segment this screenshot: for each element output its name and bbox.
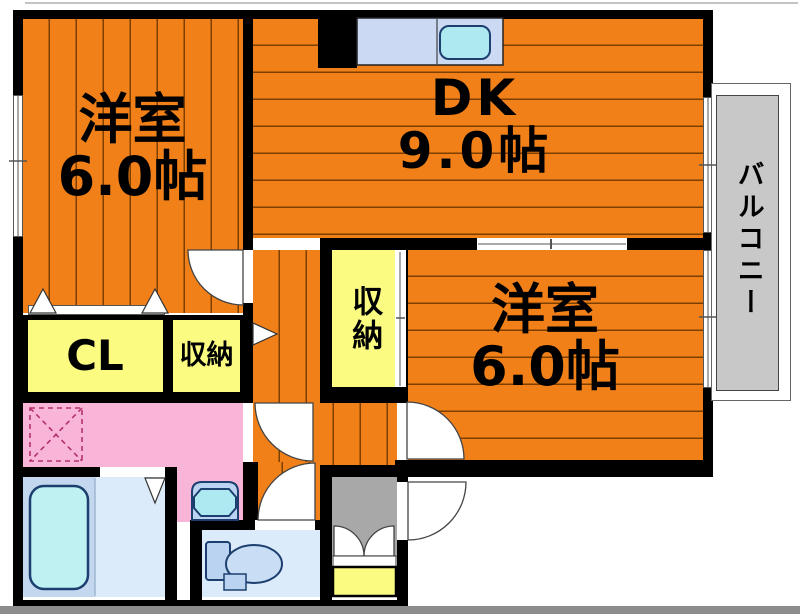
- balcony-label: バルコニー: [717, 120, 778, 360]
- wall-storage-mid-south: [320, 387, 408, 403]
- door-arc-front-door: [408, 482, 466, 540]
- room-name: DK: [365, 72, 585, 125]
- top-border-line: [25, 2, 798, 4]
- wall-left-upper: [13, 19, 23, 95]
- storage-hall-label: 収納: [168, 342, 245, 370]
- storage-mid-label: 収納: [336, 258, 392, 380]
- hallway-floor-mid: [253, 397, 397, 465]
- floor-plan: 洋室 6.0帖 DK 9.0帖 洋室 6.0帖 CL 収納 収納 バルコニー: [0, 0, 800, 614]
- wall-divider-upper: [243, 10, 253, 250]
- closet-door-track: [28, 305, 165, 315]
- opening-room2-door: [397, 403, 408, 460]
- closet-label: CL: [25, 334, 165, 378]
- opening-washroom-door: [243, 403, 253, 462]
- room-size: 9.0帖: [365, 125, 585, 178]
- toilet-room-floor: [202, 530, 320, 597]
- wall-room2-south: [395, 460, 713, 477]
- wall-bathroom-top: [23, 467, 100, 477]
- opening-front-door: [397, 482, 408, 540]
- western-room-1-label: 洋室 6.0帖: [25, 92, 240, 205]
- room-name: 洋室: [425, 282, 665, 339]
- western-room-2-label: 洋室 6.0帖: [425, 282, 665, 395]
- room-name: 洋室: [25, 92, 240, 149]
- wall-left-lower: [13, 237, 23, 610]
- opening-dk-hallway: [253, 238, 320, 250]
- hallway-floor-upper: [253, 248, 320, 397]
- opening-bathroom-door: [100, 469, 165, 477]
- wall-top: [13, 10, 713, 19]
- washroom-floor: [23, 403, 243, 467]
- bottom-border-bar: [0, 606, 800, 614]
- bathtub-surround: [23, 477, 95, 597]
- wall-washroom-north: [23, 394, 245, 403]
- wall-dk-south-a: [320, 238, 477, 250]
- wall-genkan-west: [320, 465, 332, 600]
- storage-mid-door-track: [395, 250, 406, 387]
- room-size: 6.0帖: [425, 339, 665, 396]
- opening-room1-door: [243, 250, 253, 303]
- shoe-cabinet-top: [333, 556, 396, 567]
- kitchen-pillar: [318, 10, 357, 68]
- sliding-door-dk-room2: [477, 238, 627, 250]
- washroom-floor-lower: [177, 467, 245, 522]
- room-size: 6.0帖: [25, 149, 240, 206]
- wall-bath-toilet: [165, 467, 177, 607]
- shoe-cabinet: [333, 567, 396, 596]
- window-west: [13, 95, 23, 237]
- dining-kitchen-label: DK 9.0帖: [365, 72, 585, 177]
- opening-toilet-door: [255, 520, 315, 530]
- wall-toilet-left: [190, 520, 202, 600]
- wall-dk-south-b: [627, 238, 713, 250]
- genkan-floor: [332, 477, 397, 557]
- hallway-floor-lower: [256, 462, 320, 522]
- wall-genkan-step: [320, 465, 397, 477]
